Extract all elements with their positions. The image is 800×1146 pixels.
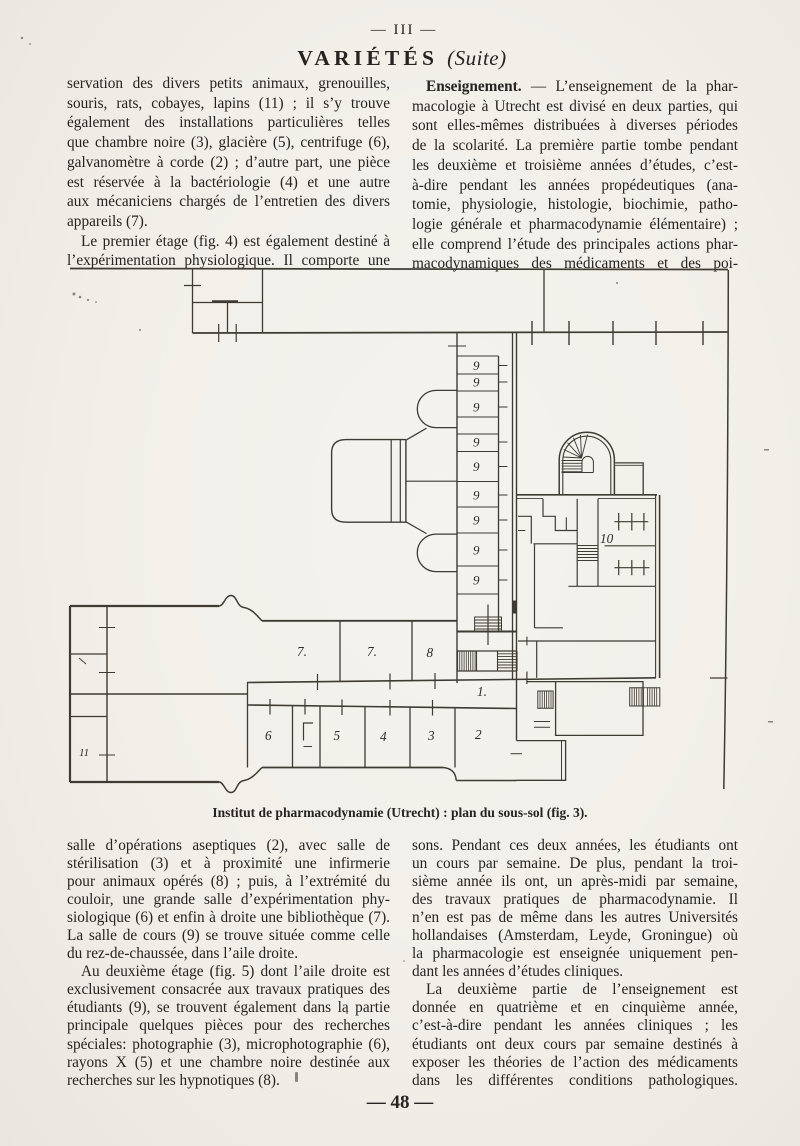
svg-text:2: 2 [475, 727, 482, 742]
svg-text:11: 11 [79, 747, 89, 759]
svg-text:9: 9 [473, 488, 480, 503]
svg-text:9: 9 [473, 358, 480, 373]
svg-text:9: 9 [473, 459, 480, 474]
svg-text:7.: 7. [367, 644, 377, 659]
svg-text:9: 9 [473, 400, 480, 415]
svg-text:6: 6 [265, 728, 272, 743]
svg-text:9: 9 [473, 435, 480, 450]
svg-text:9: 9 [473, 543, 480, 558]
svg-text:7.: 7. [297, 644, 307, 659]
svg-text:5: 5 [334, 728, 341, 743]
svg-text:9: 9 [473, 513, 480, 528]
svg-text:1.: 1. [477, 684, 487, 699]
svg-text:9: 9 [473, 573, 480, 588]
svg-text:8: 8 [427, 645, 434, 660]
svg-text:4: 4 [380, 729, 387, 744]
svg-text:9: 9 [473, 375, 480, 390]
svg-text:3: 3 [427, 728, 435, 743]
svg-text:10: 10 [600, 531, 614, 546]
